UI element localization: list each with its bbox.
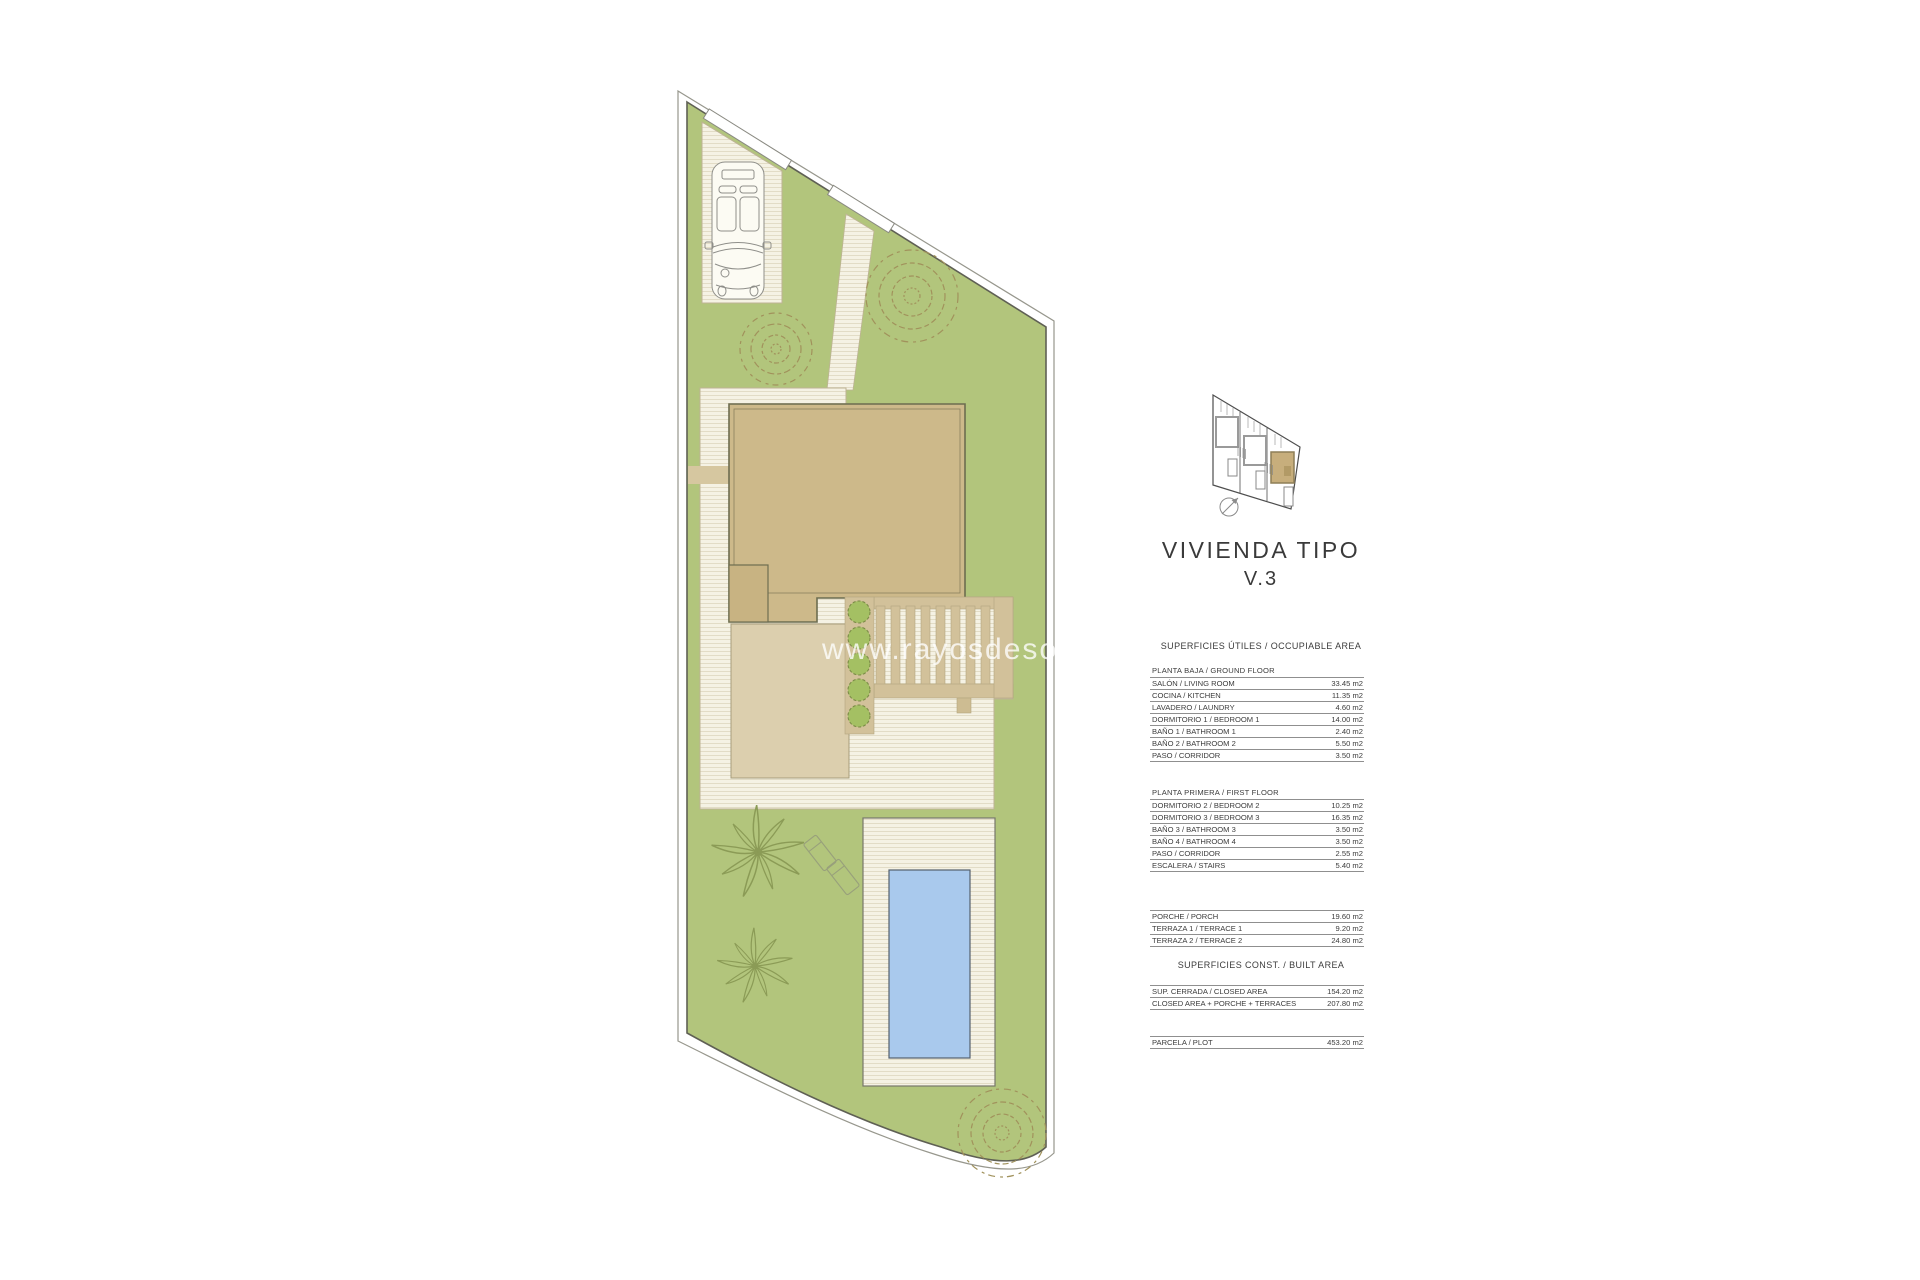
table-row: PASO / CORRIDOR2.55 m2 [1150,848,1364,860]
table-row: BAÑO 2 / BATHROOM 25.50 m2 [1150,738,1364,750]
table-row: DORMITORIO 1 / BEDROOM 114.00 m2 [1150,714,1364,726]
table-row: SALÓN / LIVING ROOM33.45 m2 [1150,678,1364,690]
occupiable-area-heading: SUPERFICIES ÚTILES / OCCUPIABLE AREA [1154,641,1368,651]
row-label: BAÑO 1 / BATHROOM 1 [1150,726,1236,737]
occupiable-area-table: PLANTA BAJA / GROUND FLOORSALÓN / LIVING… [1150,664,1364,947]
row-label: PASO / CORRIDOR [1150,848,1220,859]
row-label: SALÓN / LIVING ROOM [1150,678,1235,689]
table-row: DORMITORIO 2 / BEDROOM 210.25 m2 [1150,800,1364,812]
row-label: TERRAZA 2 / TERRACE 2 [1150,935,1242,946]
row-value: 24.80 m2 [1331,935,1364,946]
row-value: 453.20 m2 [1327,1037,1364,1048]
table-group: PORCHE / PORCH19.60 m2TERRAZA 1 / TERRAC… [1150,910,1364,947]
row-label: DORMITORIO 1 / BEDROOM 1 [1150,714,1259,725]
location-diagram [1213,395,1300,516]
row-value: 19.60 m2 [1331,911,1364,922]
site-plan: www.rayosdesol.be [0,0,1920,1280]
row-value: 2.40 m2 [1336,726,1364,737]
architectural-plan-page: www.rayosdesol.be [0,0,1920,1280]
table-row: BAÑO 1 / BATHROOM 12.40 m2 [1150,726,1364,738]
table-group: SUP. CERRADA / CLOSED AREA154.20 m2CLOSE… [1150,985,1364,1010]
row-value: 154.20 m2 [1327,986,1364,997]
title-block: VIVIENDA TIPO V.3 [1161,537,1361,591]
group-title: PLANTA PRIMERA / FIRST FLOOR [1150,786,1364,800]
row-value: 14.00 m2 [1331,714,1364,725]
table-row: CLOSED AREA + PORCHE + TERRACES207.80 m2 [1150,998,1364,1010]
row-value: 3.50 m2 [1336,750,1364,761]
row-label: DORMITORIO 2 / BEDROOM 2 [1150,800,1259,811]
table-row: COCINA / KITCHEN11.35 m2 [1150,690,1364,702]
pergola-post [957,698,971,713]
row-value: 5.50 m2 [1336,738,1364,749]
table-row: BAÑO 3 / BATHROOM 33.50 m2 [1150,824,1364,836]
row-label: LAVADERO / LAUNDRY [1150,702,1235,713]
group-title: PLANTA BAJA / GROUND FLOOR [1150,664,1364,678]
row-label: ESCALERA / STAIRS [1150,860,1225,871]
table-row: TERRAZA 2 / TERRACE 224.80 m2 [1150,935,1364,947]
table-row: PORCHE / PORCH19.60 m2 [1150,911,1364,923]
table-group: PARCELA / PLOT453.20 m2 [1150,1036,1364,1049]
row-label: CLOSED AREA + PORCHE + TERRACES [1150,998,1296,1009]
row-label: COCINA / KITCHEN [1150,690,1221,701]
row-label: BAÑO 4 / BATHROOM 4 [1150,836,1236,847]
row-value: 207.80 m2 [1327,998,1364,1009]
built-area-heading: SUPERFICIES CONST. / BUILT AREA [1154,960,1368,970]
table-row: LAVADERO / LAUNDRY4.60 m2 [1150,702,1364,714]
row-label: DORMITORIO 3 / BEDROOM 3 [1150,812,1259,823]
table-group: PLANTA BAJA / GROUND FLOORSALÓN / LIVING… [1150,664,1364,762]
row-label: PASO / CORRIDOR [1150,750,1220,761]
entrance-step [688,466,729,484]
row-label: BAÑO 3 / BATHROOM 3 [1150,824,1236,835]
car-icon [705,162,771,299]
row-value: 2.55 m2 [1336,848,1364,859]
table-group: PLANTA PRIMERA / FIRST FLOORDORMITORIO 2… [1150,786,1364,872]
swimming-pool [889,870,970,1058]
built-area-table: SUP. CERRADA / CLOSED AREA154.20 m2CLOSE… [1150,985,1364,1049]
table-row: BAÑO 4 / BATHROOM 43.50 m2 [1150,836,1364,848]
row-label: PARCELA / PLOT [1150,1037,1213,1048]
page-title: VIVIENDA TIPO [1161,537,1361,564]
row-label: SUP. CERRADA / CLOSED AREA [1150,986,1268,997]
table-row: TERRAZA 1 / TERRACE 19.20 m2 [1150,923,1364,935]
row-value: 3.50 m2 [1336,824,1364,835]
row-value: 16.35 m2 [1331,812,1364,823]
row-label: PORCHE / PORCH [1150,911,1218,922]
row-value: 5.40 m2 [1336,860,1364,871]
row-value: 4.60 m2 [1336,702,1364,713]
row-value: 33.45 m2 [1331,678,1364,689]
table-row: DORMITORIO 3 / BEDROOM 316.35 m2 [1150,812,1364,824]
row-value: 3.50 m2 [1336,836,1364,847]
house-store-room [729,565,768,622]
row-label: BAÑO 2 / BATHROOM 2 [1150,738,1236,749]
watermark: www.rayosdesol.be [821,633,1114,666]
row-value: 10.25 m2 [1331,800,1364,811]
table-row: SUP. CERRADA / CLOSED AREA154.20 m2 [1150,986,1364,998]
row-value: 11.35 m2 [1332,690,1364,701]
table-row: PASO / CORRIDOR3.50 m2 [1150,750,1364,762]
page-subtitle: V.3 [1161,568,1361,591]
row-value: 9.20 m2 [1336,923,1364,934]
row-label: TERRAZA 1 / TERRACE 1 [1150,923,1242,934]
table-row: PARCELA / PLOT453.20 m2 [1150,1037,1364,1049]
table-row: ESCALERA / STAIRS5.40 m2 [1150,860,1364,872]
compass-icon [1220,498,1238,516]
